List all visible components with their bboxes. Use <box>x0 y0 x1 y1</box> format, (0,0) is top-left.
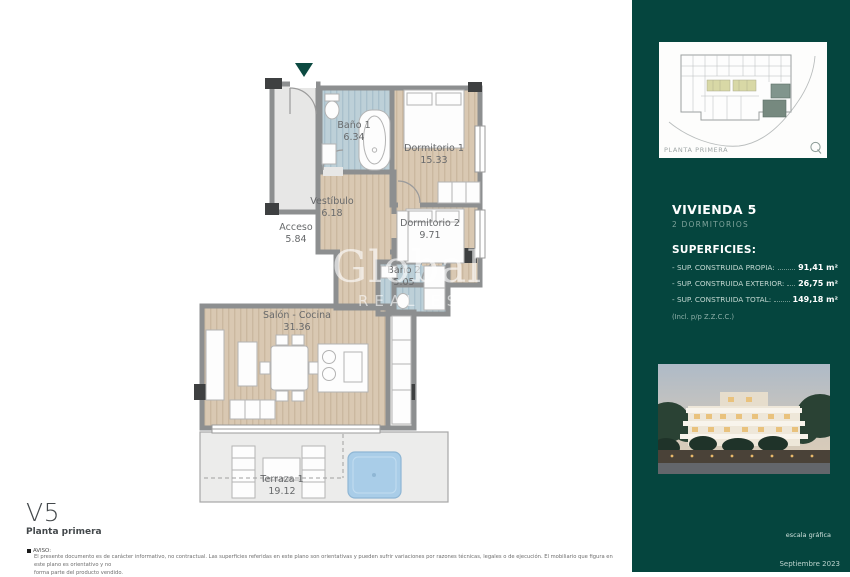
room-area: 9.71 <box>400 230 460 242</box>
room-area: 6.34 <box>337 132 370 144</box>
document-date: Septiembre 2023 <box>779 560 840 568</box>
unit-identifier: V5 Planta primera <box>26 500 102 537</box>
room-name: Terraza 1 <box>260 474 303 486</box>
surface-label: - SUP. CONSTRUIDA TOTAL: <box>672 295 771 304</box>
dotted-leader <box>787 285 795 286</box>
floorplan-drawing <box>0 0 632 572</box>
unit-code: V5 <box>26 500 102 525</box>
unit-subtitle: 2 DORMITORIOS <box>672 220 838 229</box>
scale-caption: escala gráfica <box>786 531 831 539</box>
keyplan-drawing <box>659 42 827 158</box>
dotted-leader <box>778 269 795 270</box>
notice-text-line1: El presente documento es de carácter inf… <box>34 554 619 570</box>
room-label-terraza1: Terraza 1 19.12 <box>260 474 303 498</box>
building-render-photo <box>658 364 830 474</box>
surface-value: 26,75 m² <box>798 279 838 288</box>
surface-row: - SUP. CONSTRUIDA EXTERIOR: 26,75 m² <box>672 279 838 288</box>
dotted-leader <box>774 301 789 302</box>
surface-row: - SUP. CONSTRUIDA PROPIA: 91,41 m² <box>672 263 838 272</box>
room-label-salon-cocina: Salón - Cocina 31.36 <box>263 310 331 334</box>
room-name: Dormitorio 2 <box>400 218 460 230</box>
room-name: Baño 1 <box>337 120 370 132</box>
room-label-bano1: Baño 1 6.34 <box>337 120 370 144</box>
room-name: Baño 2 <box>387 265 420 277</box>
room-label-dormitorio2: Dormitorio 2 9.71 <box>400 218 460 242</box>
legal-notice: AVISO: El presente documento es de carác… <box>27 548 619 577</box>
notice-bullet-icon <box>27 549 31 553</box>
surface-value: 91,41 m² <box>798 263 838 272</box>
keyplan-thumbnail: PLANTA PRIMERA <box>659 42 827 158</box>
unit-title: VIVIENDA 5 <box>672 202 838 217</box>
room-area: 5.84 <box>279 234 312 246</box>
room-area: 15.33 <box>404 155 464 167</box>
surface-row: - SUP. CONSTRUIDA TOTAL: 149,18 m² <box>672 295 838 304</box>
room-area: 5.05 <box>387 277 420 289</box>
surface-label: - SUP. CONSTRUIDA PROPIA: <box>672 263 775 272</box>
room-area: 19.12 <box>260 486 303 498</box>
q-logo-icon <box>809 141 823 155</box>
surfaces-note: (Incl. p/p Z.Z.C.C.) <box>672 313 838 321</box>
floor-name: Planta primera <box>26 527 102 537</box>
surfaces-heading: SUPERFICIES: <box>672 244 838 256</box>
room-label-dormitorio1: Dormitorio 1 15.33 <box>404 143 464 167</box>
unit-info-block: VIVIENDA 5 2 DORMITORIOS SUPERFICIES: - … <box>672 202 838 321</box>
room-label-vestibulo: Vestíbulo 6.18 <box>310 196 353 220</box>
entrance-marker-icon <box>295 63 313 77</box>
floorplan-page: Acceso 5.84 Baño 1 6.34 Dormitorio 1 15.… <box>0 0 850 572</box>
plunge-pool <box>348 452 401 498</box>
room-name: Vestíbulo <box>310 196 353 208</box>
room-area: 31.36 <box>263 322 331 334</box>
surface-label: - SUP. CONSTRUIDA EXTERIOR: <box>672 279 784 288</box>
surface-value: 149,18 m² <box>793 295 839 304</box>
info-sidebar: PLANTA PRIMERA VIVIENDA 5 2 DORMITORIOS … <box>632 0 850 572</box>
room-name: Acceso <box>279 222 312 234</box>
room-name: Dormitorio 1 <box>404 143 464 155</box>
room-label-bano2: Baño 2 5.05 <box>387 265 420 289</box>
floorplan-canvas: Acceso 5.84 Baño 1 6.34 Dormitorio 1 15.… <box>0 0 632 572</box>
room-label-acceso: Acceso 5.84 <box>279 222 312 246</box>
room-area: 6.18 <box>310 208 353 220</box>
notice-text-line2: forma parte del producto vendido. <box>34 570 619 577</box>
room-name: Salón - Cocina <box>263 310 331 322</box>
keyplan-caption: PLANTA PRIMERA <box>664 146 728 154</box>
